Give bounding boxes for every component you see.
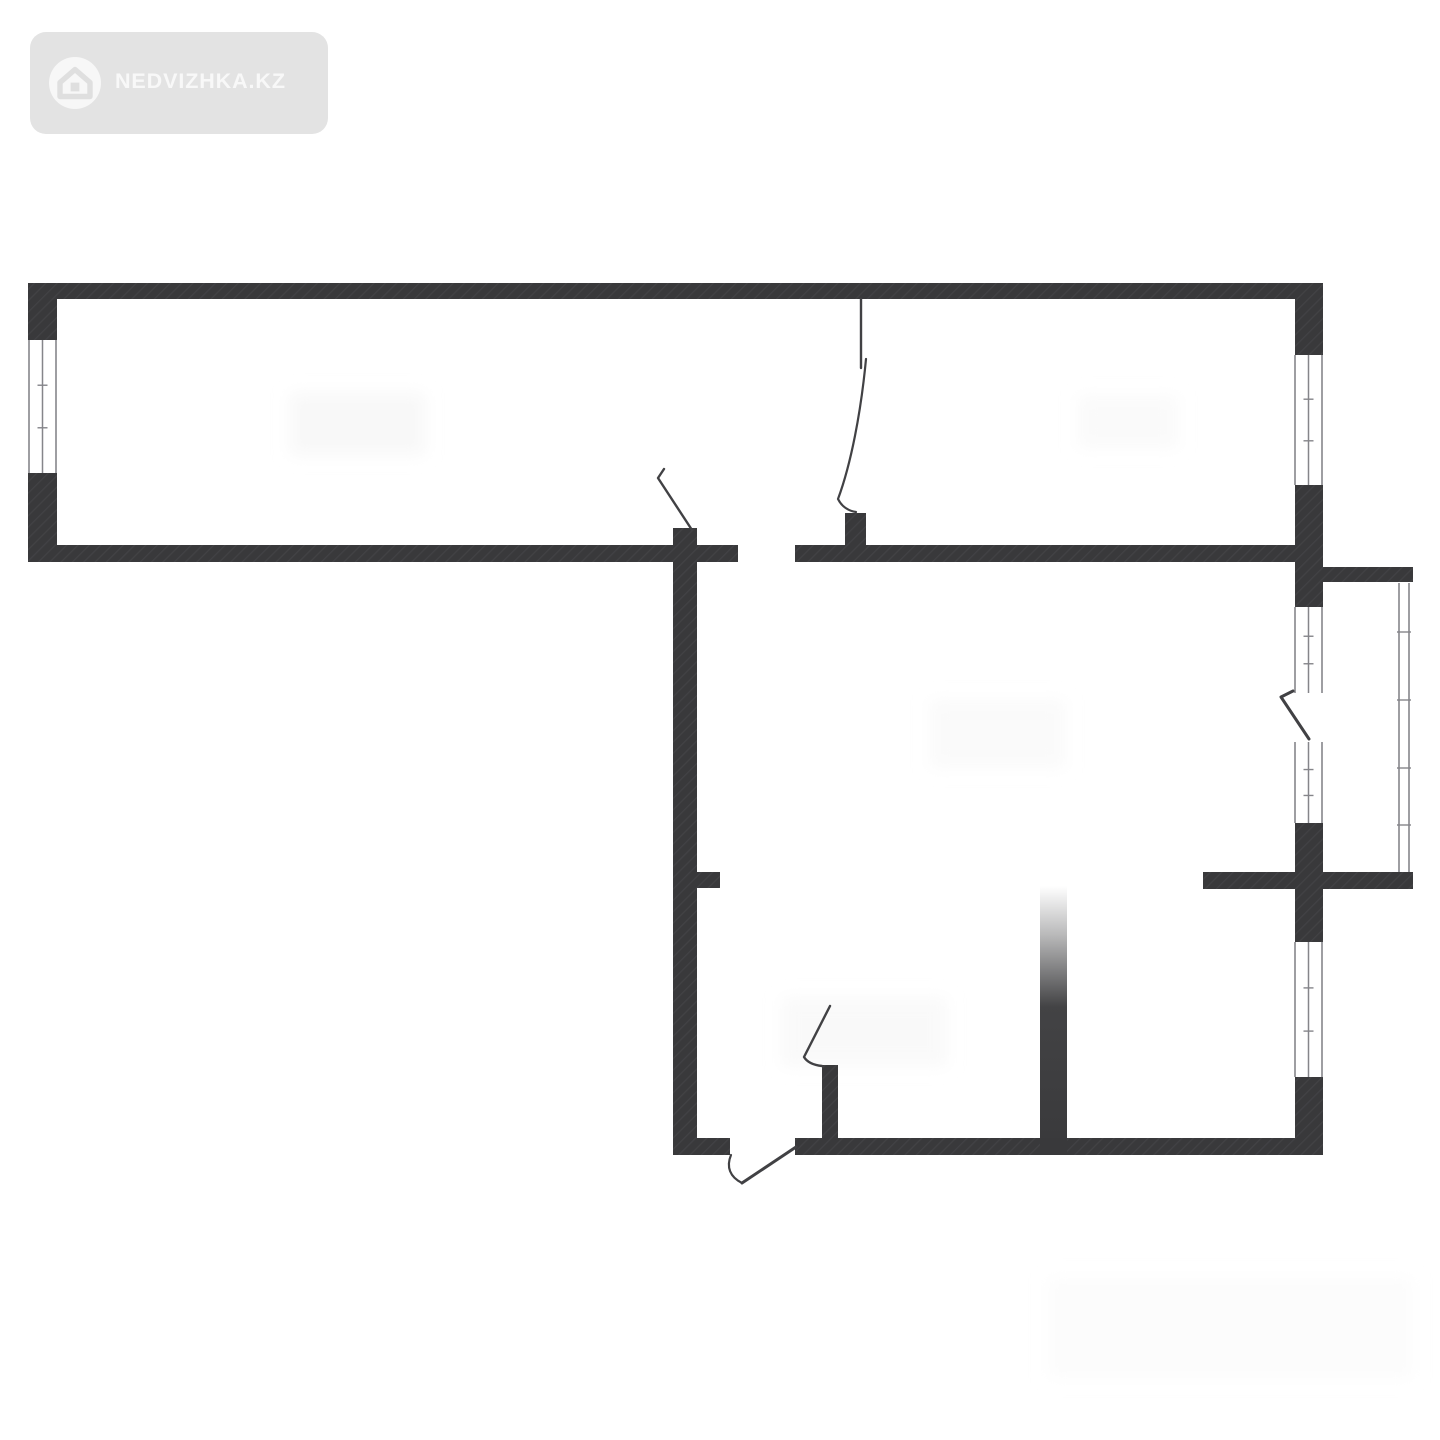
bottom-wall-left-segment [673,1138,730,1155]
door-stub-top-right-room [845,513,866,545]
hall-stub-left [695,872,720,888]
erased-label [782,998,947,1066]
erased-label [1078,396,1178,448]
windows-layer [27,340,1411,1077]
corridor-wall [673,528,697,1155]
door-leaf-left-room [658,469,692,530]
balcony-glazing-upper [1293,607,1324,693]
door-leaf-balcony [1281,691,1309,739]
balcony-top-wall [1323,567,1413,582]
house-icon [49,57,101,109]
entrance-door-swing [729,1155,742,1183]
top-exterior-wall [28,283,1323,299]
hall-stub-and-balcony-floor [1203,872,1413,889]
mid-wall-right-segment [795,545,1295,562]
walls-layer [28,283,1413,1155]
erased-label [1048,1278,1413,1378]
right-exterior-wall-seg1 [1295,283,1323,355]
right-exterior-wall-seg2 [1295,485,1323,607]
logo-text: NEDVIZHKA.KZ [115,71,286,95]
floorplan-drawing [0,0,1440,1440]
bottom-room-stub [822,1065,838,1145]
faded-partition-wall [1040,886,1067,1155]
window-top-right-room [1293,355,1324,485]
mid-wall-left-segment [28,545,738,562]
window-left-room [27,340,58,473]
erased-label [930,700,1065,768]
door-swing-top-right-room [838,359,866,512]
nedvizhka-logo-badge: NEDVIZHKA.KZ [30,32,328,134]
window-bottom-right-room [1293,942,1324,1077]
entrance-door-leaf [742,1147,796,1183]
left-exterior-wall-upper [28,283,57,340]
balcony-glazing-lower [1293,742,1324,823]
floorplan-image: NEDVIZHKA.KZ [0,0,1440,1440]
balcony-railing [1397,583,1411,872]
erased-label [290,393,425,455]
